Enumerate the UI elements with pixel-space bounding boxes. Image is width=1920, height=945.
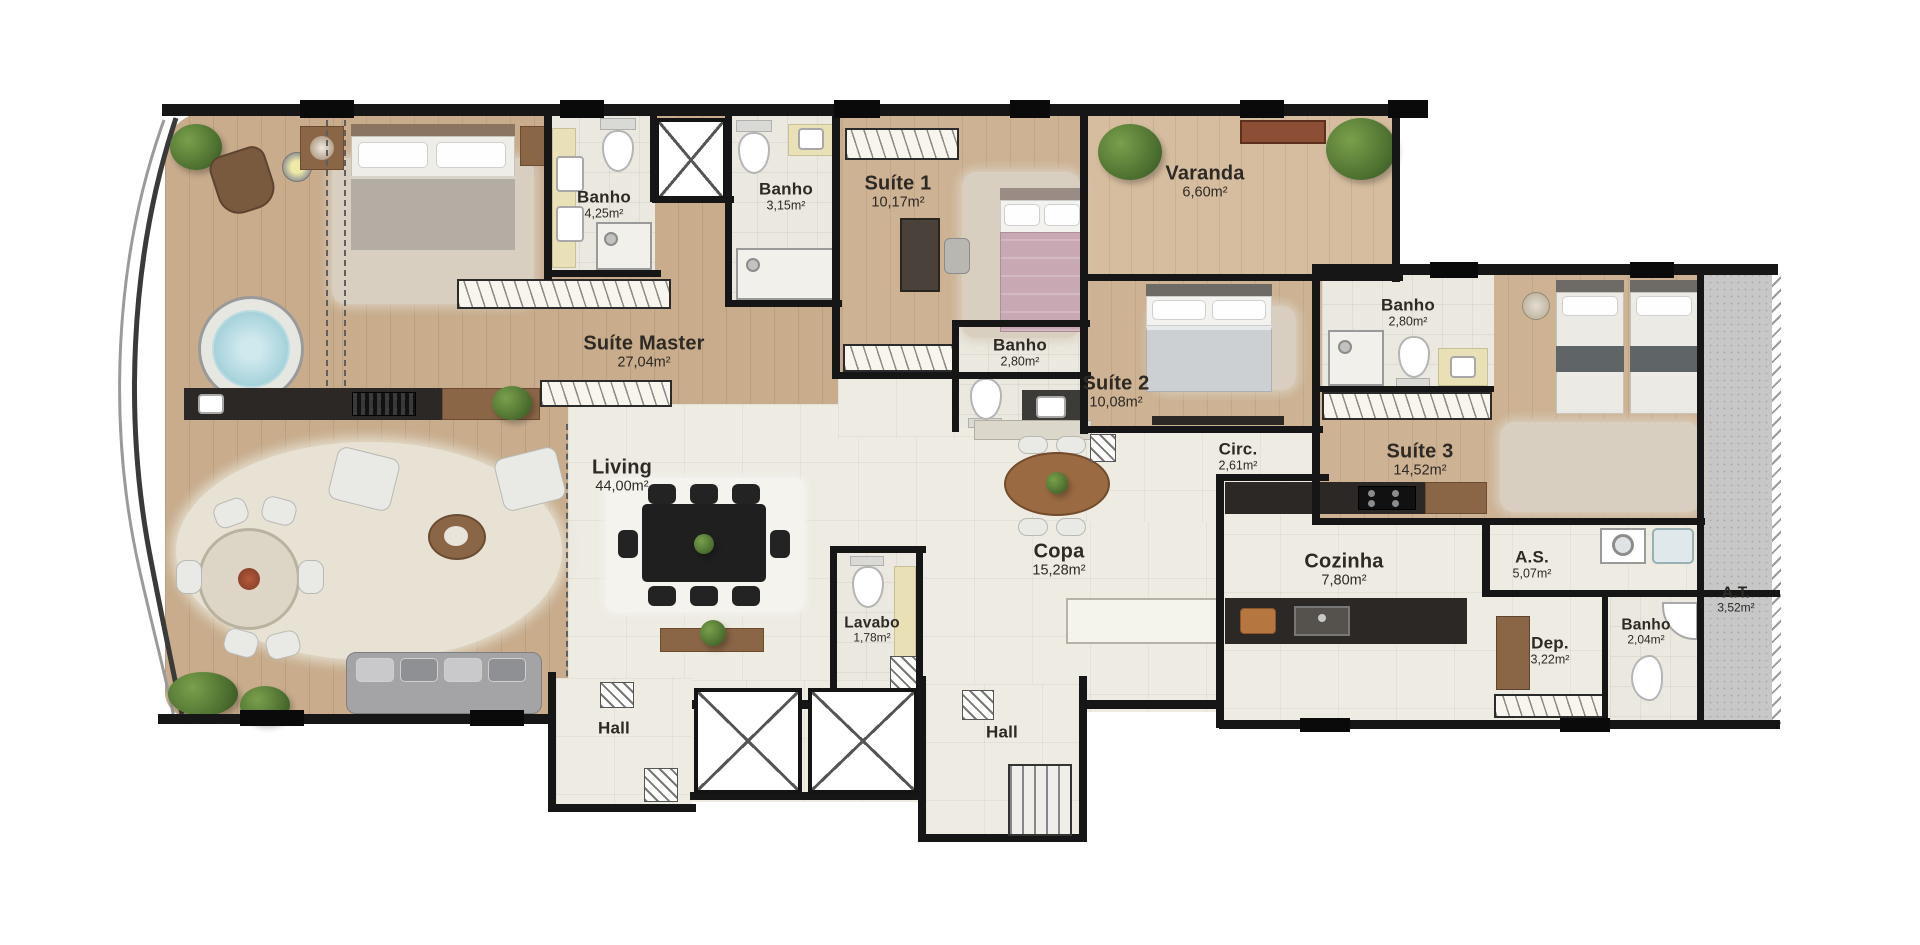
counter-sink (198, 394, 224, 414)
room-label-banho-master: Banho4,25m² (577, 187, 631, 220)
column (470, 710, 524, 726)
column (1430, 262, 1478, 278)
sink (1036, 396, 1066, 418)
pillow (1152, 300, 1206, 320)
sofa-cushion (356, 658, 394, 682)
glass-door-line (566, 424, 568, 706)
pillow (1636, 296, 1692, 316)
room-label-suite-master: Suíte Master27,04m² (583, 333, 704, 372)
area-tecnica-sawtooth-edge (1772, 272, 1781, 724)
glass-door-line (344, 120, 346, 386)
door-panel (1090, 434, 1116, 462)
suite-2-blanket (1146, 326, 1272, 392)
stairs (1008, 764, 1072, 836)
plant (1098, 124, 1162, 180)
wall-segment (548, 672, 556, 812)
elevator-shaft (655, 118, 727, 202)
pillow (358, 142, 428, 168)
wood-bench (1240, 120, 1326, 144)
room-label-circ: Circ.2,61m² (1219, 439, 1258, 472)
pillow (1044, 204, 1080, 226)
wall-segment (1697, 268, 1704, 728)
floor-plan: Suíte Master27,04m² Banho4,25m² Banho3,1… (0, 0, 1920, 945)
suite-3-rug (1500, 422, 1700, 512)
wall-segment (952, 320, 959, 432)
column (1560, 718, 1610, 732)
kitchen-counter-wood (1425, 482, 1487, 514)
wall-segment (1083, 426, 1323, 433)
door-panel (962, 690, 994, 720)
wall-segment (830, 546, 926, 553)
chair (1018, 436, 1048, 454)
glass-door-line (326, 120, 328, 386)
pillow (1004, 204, 1040, 226)
sofa-cushion (488, 658, 526, 682)
wardrobe (1322, 392, 1492, 420)
column (1240, 100, 1284, 118)
door-panel (600, 682, 634, 708)
wall-segment (544, 104, 552, 280)
wall-segment (1312, 518, 1705, 525)
plant (492, 386, 532, 420)
tv-console (1152, 416, 1284, 425)
suite-2-headboard (1146, 284, 1272, 296)
wall-segment (1216, 474, 1224, 728)
chair (1056, 518, 1086, 536)
plant (700, 620, 726, 646)
wardrobe (457, 279, 671, 309)
room-label-lavabo: Lavabo1,78m² (844, 615, 899, 646)
cutting-board (1240, 608, 1276, 634)
wall-segment (650, 112, 657, 202)
bed-throw (1556, 346, 1624, 372)
wardrobe (540, 380, 672, 407)
room-label-deposito: Dep.3,22m² (1531, 633, 1570, 666)
sink (1450, 356, 1476, 378)
table-centerpiece (238, 568, 260, 590)
room-label-suite-2: Suíte 210,08m² (1083, 373, 1150, 412)
chair (176, 560, 202, 594)
toilet (1631, 655, 1663, 701)
wall-segment (952, 320, 1090, 327)
wardrobe (845, 128, 959, 160)
copa-buffet (1066, 598, 1224, 644)
column (560, 100, 604, 118)
tv-desk (900, 218, 940, 292)
table-centerpiece (1046, 472, 1068, 494)
room-label-suite-1: Suíte 110,17m² (865, 173, 932, 212)
wall-segment (727, 300, 842, 307)
sofa-cushion (400, 658, 438, 682)
desk-chair (944, 238, 970, 274)
wall-segment (548, 804, 696, 812)
shower-head-icon (746, 258, 760, 272)
door-panel (644, 768, 678, 802)
wall-segment (1392, 104, 1400, 282)
chair (298, 560, 324, 594)
shelf (1494, 694, 1606, 718)
room-label-hall-right: Hall (986, 722, 1018, 741)
wall-segment (725, 112, 732, 307)
dining-chair (690, 484, 718, 504)
shower-head-icon (1338, 340, 1352, 354)
wall-segment (1318, 386, 1494, 392)
grill (352, 392, 416, 416)
pillow (436, 142, 506, 168)
wardrobe (843, 344, 959, 372)
plant (168, 672, 238, 716)
sink (798, 128, 824, 150)
dining-chair (618, 530, 638, 558)
dining-chair (770, 530, 790, 558)
jacuzzi-water (212, 310, 290, 388)
elevator-shaft (808, 688, 918, 794)
suite-master-blanket (351, 176, 515, 250)
suite-3-headboard (1630, 280, 1698, 292)
wall-segment (1602, 594, 1608, 726)
room-label-banho-social: Banho3,15m² (759, 179, 813, 212)
faucet-icon (1318, 614, 1326, 622)
wall-segment (832, 104, 840, 379)
room-label-suite-3: Suíte 314,52m² (1387, 441, 1454, 480)
wall-segment (1079, 676, 1087, 842)
wall-segment (1312, 264, 1320, 525)
dining-chair (648, 484, 676, 504)
elevator-shaft (694, 688, 802, 794)
suite-1-blanket (1000, 232, 1084, 332)
wall-segment (830, 546, 837, 698)
stove-burner-icon (1368, 490, 1375, 497)
column (834, 100, 880, 118)
bed-throw (1630, 346, 1698, 372)
dining-chair (690, 586, 718, 606)
storage-cabinet (1496, 616, 1530, 690)
coffee-table-tray (444, 526, 468, 546)
suite-3-headboard (1556, 280, 1624, 292)
room-label-banho-servico: Banho2,04m² (1621, 617, 1670, 648)
wall-segment (1482, 518, 1490, 597)
room-label-copa: Copa15,28m² (1032, 541, 1085, 580)
plant (1326, 118, 1396, 180)
room-label-banho-suite-2: Banho2,80m² (993, 335, 1047, 368)
column (240, 710, 304, 726)
shower (596, 222, 652, 270)
shower (736, 248, 834, 300)
column (300, 100, 354, 118)
shower-head-icon (604, 232, 618, 246)
wall-segment (836, 372, 1091, 379)
washer-drum-icon (1612, 534, 1634, 556)
column (1300, 718, 1350, 732)
column (1010, 100, 1050, 118)
pouf (1522, 292, 1550, 320)
room-label-living: Living44,00m² (592, 457, 652, 496)
wall-segment (1083, 274, 1403, 281)
dining-chair (648, 586, 676, 606)
toilet-tank (736, 120, 772, 132)
dining-chair (732, 484, 760, 504)
room-label-area-tecnica: A.T.3,52m² (1717, 585, 1754, 616)
toilet-tank (850, 556, 884, 566)
wall-segment (918, 676, 926, 842)
nightstand (520, 126, 546, 166)
pillow (1212, 300, 1266, 320)
room-label-servico: A.S.5,07m² (1513, 547, 1552, 580)
toilet-tank (600, 118, 636, 130)
column (1388, 100, 1428, 118)
room-label-banho-suite-3: Banho2,80m² (1381, 295, 1435, 328)
laundry-tub (1652, 528, 1694, 564)
column (1630, 262, 1674, 278)
stove (1358, 486, 1416, 510)
wall-segment (549, 270, 661, 277)
nightstand-decor (310, 136, 334, 160)
shower (1328, 330, 1384, 386)
chair (1018, 518, 1048, 536)
room-label-cozinha: Cozinha7,80m² (1304, 551, 1383, 590)
suite-1-headboard (1000, 188, 1084, 200)
room-label-varanda: Varanda6,60m² (1165, 163, 1244, 202)
vanity-counter (552, 128, 576, 268)
wall-segment (652, 196, 734, 203)
table-centerpiece (694, 534, 714, 554)
pillow (1562, 296, 1618, 316)
dining-chair (732, 586, 760, 606)
sofa-cushion (444, 658, 482, 682)
room-label-hall-left: Hall (598, 718, 630, 737)
